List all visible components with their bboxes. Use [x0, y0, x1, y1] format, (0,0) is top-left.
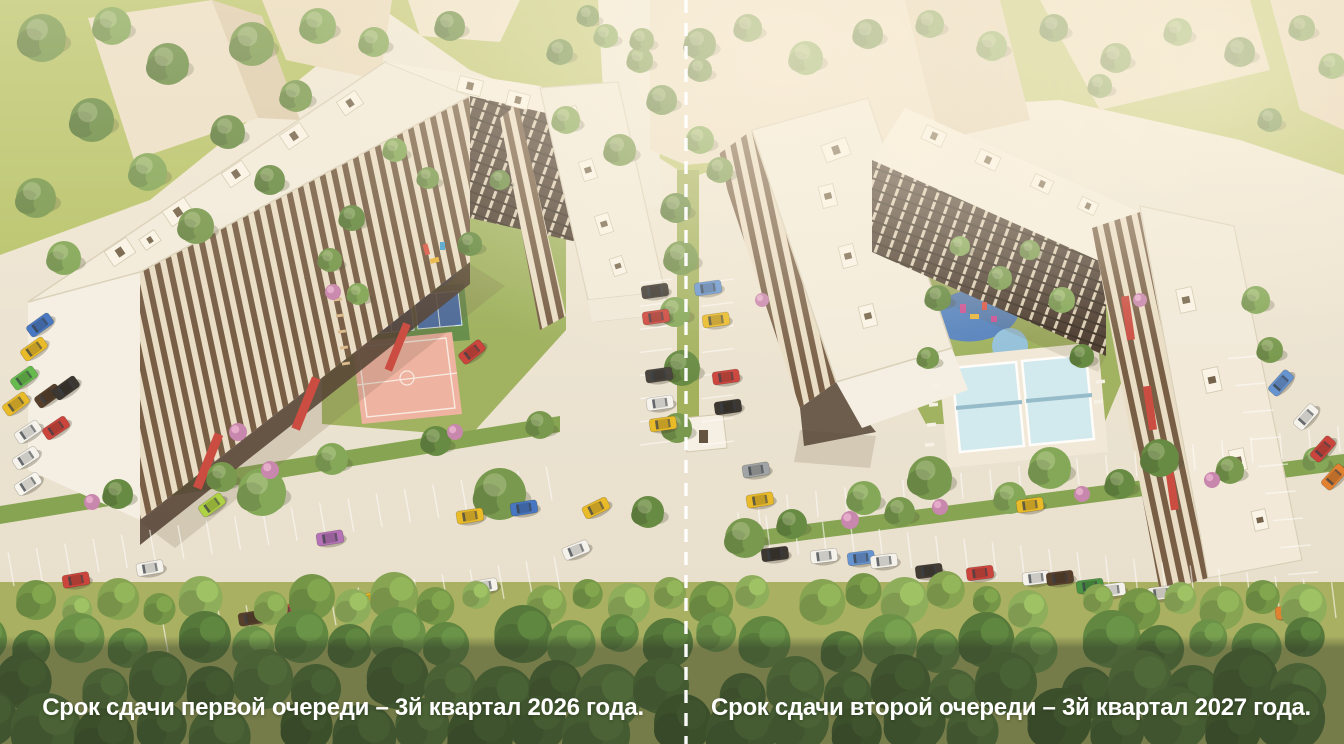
caption-right: Срок сдачи второй очереди – 3й квартал 2…	[678, 687, 1344, 729]
render-scene	[0, 0, 1344, 744]
warm-tint	[0, 0, 1344, 744]
caption-left: Срок сдачи первой очереди – 3й квартал 2…	[0, 687, 686, 729]
caption-band-fade	[0, 636, 1344, 648]
aerial-render: Срок сдачи первой очереди – 3й квартал 2…	[0, 0, 1344, 744]
